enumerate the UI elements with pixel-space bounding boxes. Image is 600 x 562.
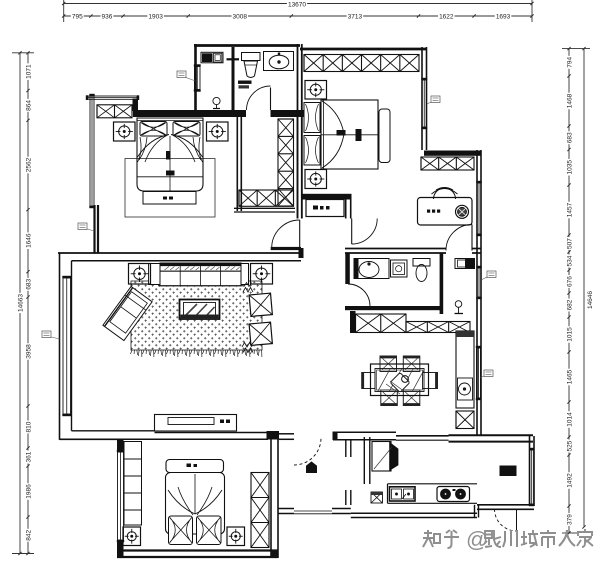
- svg-text:13670: 13670: [288, 1, 306, 8]
- svg-text:534: 534: [567, 255, 574, 266]
- svg-text:1492: 1492: [567, 473, 574, 488]
- svg-text:1014: 1014: [567, 412, 574, 427]
- svg-text:1071: 1071: [26, 64, 33, 79]
- svg-text:683: 683: [567, 132, 574, 143]
- svg-text:1035: 1035: [567, 160, 574, 175]
- svg-text:507: 507: [567, 238, 574, 249]
- svg-text:936: 936: [102, 13, 113, 20]
- svg-text:1646: 1646: [26, 233, 33, 248]
- svg-text:3713: 3713: [348, 13, 363, 20]
- svg-text:810: 810: [26, 421, 33, 432]
- svg-text:795: 795: [72, 13, 83, 20]
- svg-text:1903: 1903: [148, 13, 163, 20]
- svg-text:676: 676: [567, 276, 574, 287]
- svg-text:794: 794: [567, 56, 574, 67]
- svg-text:1465: 1465: [567, 369, 574, 384]
- svg-text:1986: 1986: [26, 484, 33, 499]
- svg-text:361: 361: [26, 451, 33, 462]
- svg-text:1693: 1693: [496, 13, 511, 20]
- svg-text:1457: 1457: [567, 202, 574, 217]
- svg-text:14646: 14646: [587, 291, 594, 309]
- svg-text:525: 525: [567, 440, 574, 451]
- svg-text:842: 842: [26, 529, 33, 540]
- svg-text:379: 379: [567, 514, 574, 525]
- svg-text:1622: 1622: [439, 13, 454, 20]
- svg-text:683: 683: [26, 279, 33, 290]
- svg-text:2562: 2562: [26, 157, 33, 172]
- svg-text:14663: 14663: [18, 294, 25, 312]
- svg-text:1468: 1468: [567, 93, 574, 108]
- svg-text:682: 682: [567, 299, 574, 310]
- svg-text:1015: 1015: [567, 327, 574, 342]
- svg-text:3958: 3958: [26, 344, 33, 359]
- svg-text:864: 864: [26, 100, 33, 111]
- svg-text:3008: 3008: [233, 13, 248, 20]
